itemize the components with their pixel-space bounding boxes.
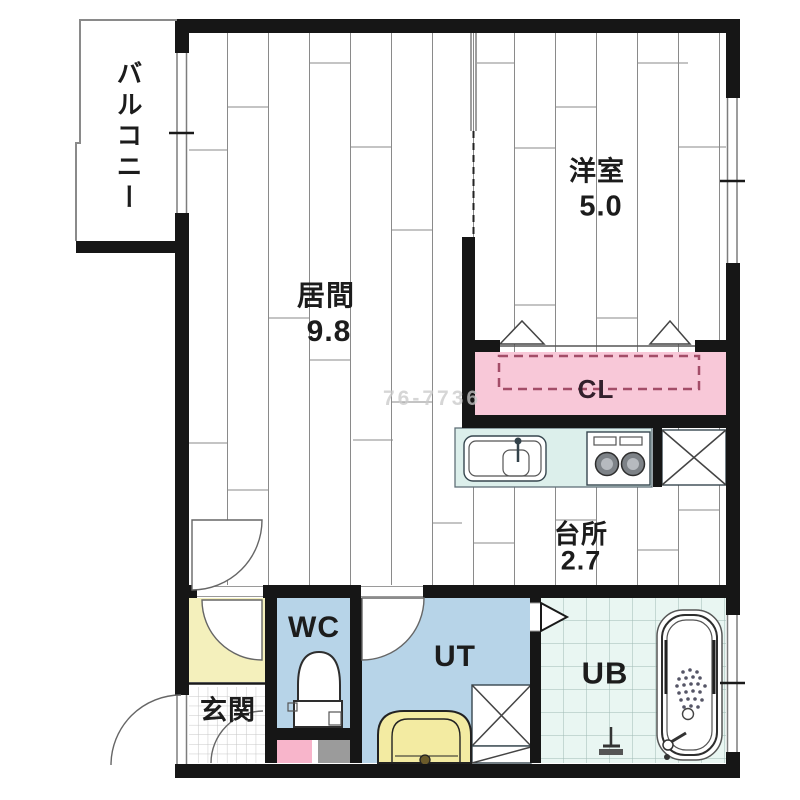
wall-bath-left: [530, 631, 541, 763]
kitchen-label: 台所: [554, 521, 608, 547]
closet-label: CL: [578, 376, 615, 402]
wall-main-horizontal: [423, 585, 726, 598]
balcony-label: バルコニー: [115, 60, 141, 215]
western-room-size: 5.0: [579, 193, 622, 222]
gray-storage-box: [318, 737, 351, 763]
living-room-label: 居間: [297, 282, 355, 310]
wall-main-horizontal: [263, 585, 361, 598]
shower-mixer-base: [599, 749, 623, 755]
wall-right: [726, 263, 740, 615]
wood-floor: [189, 33, 726, 585]
wall-closet-top: [462, 340, 500, 352]
western-room-label: 洋室: [569, 159, 625, 186]
wall-closet-bottom: [462, 415, 726, 428]
faucet-head: [515, 438, 522, 445]
basin-drain-knob: [420, 755, 430, 765]
wall-left: [175, 19, 189, 53]
balcony-wall: [76, 241, 189, 253]
living-room-size: 9.8: [307, 317, 352, 347]
stove-burner-inner: [627, 458, 639, 470]
wall-right: [726, 19, 740, 98]
wc-label: WC: [288, 613, 340, 643]
tub-faucet-knob: [664, 754, 670, 760]
bath-label: UB: [582, 658, 629, 689]
kitchen-fixtures: [455, 428, 726, 487]
toilet-tank-icon: [294, 701, 342, 727]
wall-closet-top: [695, 340, 726, 352]
floorplan-canvas: バルコニー 居間 9.8 洋室 5.0 CL 台所 2.7 WC UT UB 玄…: [0, 0, 800, 800]
kitchen-size: 2.7: [561, 548, 602, 575]
wall-bath-left: [530, 598, 541, 603]
wall-bottom: [175, 764, 740, 778]
wall-kitchen-stub: [653, 428, 662, 487]
utility-label: UT: [434, 642, 476, 672]
pink-storage-box: [277, 740, 312, 763]
entrance-label: 玄関: [200, 698, 256, 725]
front-door-swing-arc-icon: [111, 695, 181, 765]
wall-wc-bottom: [265, 728, 362, 740]
wall-top: [175, 19, 740, 33]
watermark-text: 76-7736: [383, 387, 481, 411]
stove-burner-inner: [601, 458, 613, 470]
wall-left: [175, 213, 189, 695]
bathtub-icon: [662, 615, 717, 755]
